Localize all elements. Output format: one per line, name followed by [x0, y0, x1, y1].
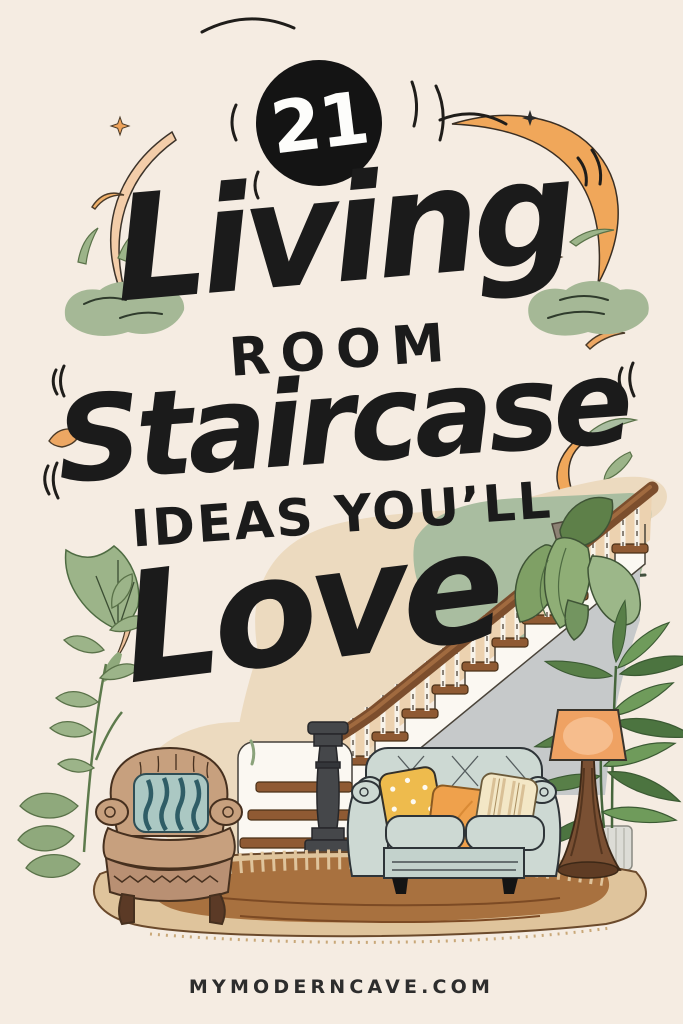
title-love: Love: [114, 510, 506, 707]
loveseat-sofa: [348, 748, 561, 894]
poster: 21 Living ROOM Staircase IDEAS YOU’LL Lo…: [0, 0, 683, 1024]
website-url: MYMODERNCAVE.COM: [189, 978, 494, 997]
title-living: Living: [107, 138, 575, 323]
